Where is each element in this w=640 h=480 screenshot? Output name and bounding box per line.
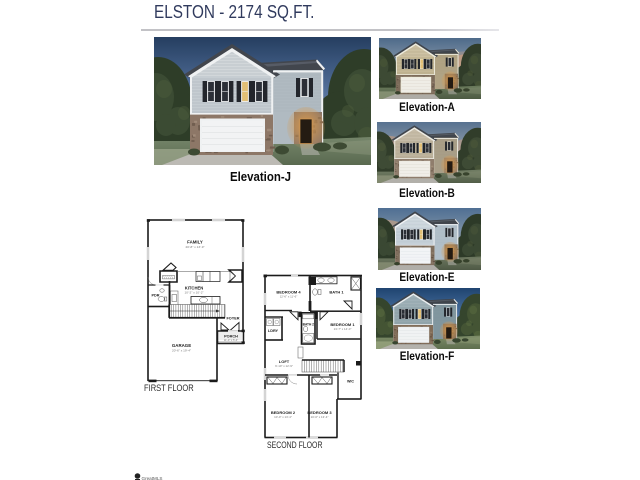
svg-text:20'-6" x 19'-4": 20'-6" x 19'-4" <box>172 348 191 352</box>
svg-text:FOYER: FOYER <box>226 317 239 321</box>
svg-text:12'-6" x 11'-6": 12'-6" x 11'-6" <box>280 295 298 299</box>
svg-text:PORCH: PORCH <box>224 334 238 338</box>
svg-text:FAMILY: FAMILY <box>187 240 203 245</box>
svg-text:13'-7" x 14'-0": 13'-7" x 14'-0" <box>334 327 352 331</box>
svg-text:WIC: WIC <box>347 380 354 384</box>
svg-text:BATH 2: BATH 2 <box>303 322 315 326</box>
svg-text:BATH 1: BATH 1 <box>329 290 344 295</box>
svg-text:10'-0" x 13'-4": 10'-0" x 13'-4" <box>311 415 329 419</box>
svg-text:GARAGE: GARAGE <box>172 343 191 348</box>
svg-text:PDR: PDR <box>151 294 159 298</box>
svg-text:9'-10" x 12'-9": 9'-10" x 12'-9" <box>275 364 293 368</box>
svg-text:11'-0" x 5'-4": 11'-0" x 5'-4" <box>224 338 238 342</box>
svg-text:GreatMLS: GreatMLS <box>142 476 163 480</box>
svg-text:10'-0" x 13'-4": 10'-0" x 13'-4" <box>274 415 292 419</box>
svg-text:10'-2" x 10'-2": 10'-2" x 10'-2" <box>184 291 203 295</box>
svg-text:LDRY: LDRY <box>268 329 279 333</box>
svg-text:20'-8" x 13'-9": 20'-8" x 13'-9" <box>185 245 204 249</box>
